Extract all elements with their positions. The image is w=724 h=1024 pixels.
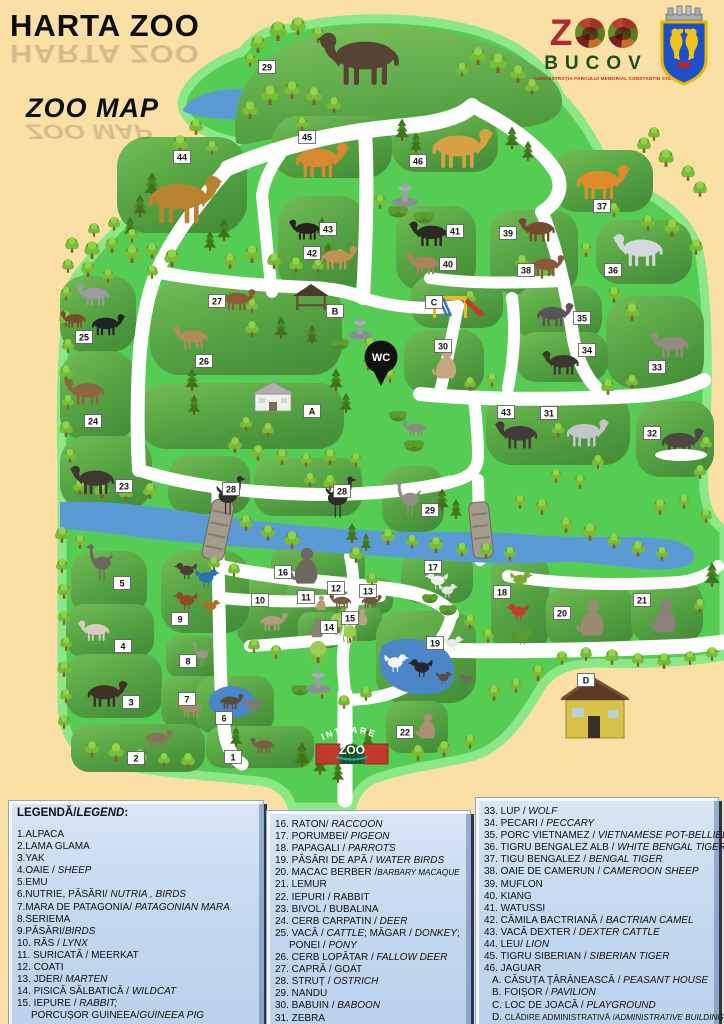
enclosure-marker-12: 12 [328,582,345,595]
marker-label: 26 [199,356,209,366]
legend-text-segment: 39. MUFLON [484,879,543,890]
enclosure-marker-4: 4 [115,640,132,653]
zoo-map-poster: INTRARE ZOO WC 294445463741403938364342C… [0,0,724,1024]
legend-text-segment: 19. PĂSĂRI DE APĂ / [275,855,376,866]
enclosure-marker-23: 23 [116,480,133,493]
legend-text-segment: 36. TIGRU BENGALEZ ALB / [484,842,617,853]
legend-text-segment: 25. VACĂ / [275,928,327,939]
legend-text-segment: 18. PAPAGALI / [275,843,348,854]
legend-text-segment: GUINEEA PIG [139,1010,204,1021]
enclosure-marker-C: C [426,296,443,309]
enclosure-marker-2: 2 [128,752,145,765]
shield-base [678,62,690,68]
legend-text-segment: 11. SURICATĂ / MEERKAT [17,950,139,961]
enclosure-marker-43: 43 [320,223,337,236]
legend-item: 9.PĂSĂRI/BIRDS [17,926,255,938]
legend-item: 22. IEPURI / RABBIT [275,892,462,904]
legend-panel-3: 33. LUP / WOLF34. PECARI / PECCARY35. PO… [475,797,719,1024]
legend-text-segment: 22. IEPURI / RABBIT [275,892,369,903]
legend-text-segment: 28. STRUȚ / [275,976,333,987]
marker-label: 20 [557,608,567,618]
marker-label: 44 [177,152,187,162]
legend-item: A. CĂSUȚA ȚĂRĂNEASCĂ / PEASANT HOUSE [484,975,710,987]
legend-text-segment: 20. MACAC BERBER / [275,867,377,878]
legend-item: 45. TIGRU SIBERIAN / SIBERIAN TIGER [484,951,710,963]
marker-label: 14 [324,622,334,632]
marker-label: 34 [582,345,592,355]
legend-item: 29. NANDU [275,988,462,1000]
legend-text-segment: BARBARY MACAQUE [377,868,459,877]
legend-text-segment: 14. PISICĂ SĂLBATICĂ / [17,986,132,997]
legend-text-segment: DONKEY [415,928,457,939]
marker-label: 10 [255,595,265,605]
legend-text-segment: CAMEROON SHEEP [603,866,699,877]
legend-text-segment: SIBERIAN TIGER [589,951,669,962]
enclosure-marker-25: 25 [76,331,93,344]
logo-letter-z: Z [550,16,573,50]
legend-text-segment: : [124,807,128,819]
enclosure-marker-35: 35 [574,312,591,325]
legend-text-segment: D. [492,1012,505,1023]
legend-item: 25. VACĂ / CATTLE; MĂGAR / DONKEY; [275,928,462,940]
marker-label: 43 [501,407,511,417]
legend-text-segment: 46. JAGUAR [484,963,541,974]
legend-text-segment: VIETNAMESE POT-BELLIED [598,830,724,841]
enclosure-marker-37: 37 [594,200,611,213]
shield [662,22,706,84]
legend-item: 26. CERB LOPĂTAR / FALLOW DEER [275,952,462,964]
legend-text-segment: 17. PORUMBEI/ [275,831,351,842]
legend-text-segment: 44. LEU/ [484,939,526,950]
enclosure-marker-27: 27 [209,295,226,308]
legend-panel-1: LEGENDĂ/LEGEND: 1.ALPACA2.LAMA GLAMA3.YA… [8,800,264,1024]
legend-item: 10. RÂS / LYNX [17,938,255,950]
enclosure-marker-6: 6 [216,712,233,725]
enclosure [66,604,154,658]
legend-text-segment: WHITE BENGAL TIGER [617,842,724,853]
legend-item: 40. KIANG [484,891,710,903]
legend-item: 36. TIGRU BENGALEZ ALB / WHITE BENGAL TI… [484,842,710,854]
legend-text-segment: 8.SERIEMA [17,914,70,925]
marker-label: 31 [544,408,554,418]
legend-text-segment: LYNX [63,938,88,949]
legend-text-segment: 27. CAPRĂ / GOAT [275,964,362,975]
marker-label: 6 [221,713,226,723]
legend-text-segment: 23. BIVOL / BUBALINA [275,904,379,915]
legend-text-segment: 37. TIGU BENGALEZ / [484,854,589,865]
legend-item: 34. PECARI / PECCARY [484,818,710,830]
legend-text-segment: 26. CERB LOPĂTAR / [275,952,377,963]
enclosure-marker-10: 10 [252,594,269,607]
legend-text-segment: NUTRIA , BIRDS [110,889,186,900]
marker-label: 12 [331,583,341,593]
marker-label: C [431,297,438,307]
legend-item: 4.OAIE / SHEEP [17,865,255,877]
legend-item: 13. JDER/ MARTEN [17,974,255,986]
legend-item: 35. PORC VIETNAMEZ / VIETNAMESE POT-BELL… [484,830,710,842]
enclosure-marker-11: 11 [298,591,315,604]
enclosure-marker-1: 1 [225,751,242,764]
legend-item: 19. PĂSĂRI DE APĂ / WATER BIRDS [275,855,462,867]
legend-text-segment: DEXTER CATTLE [579,927,660,938]
legend-text-segment: 45. TIGRU SIBERIAN / [484,951,589,962]
enclosure-marker-17: 17 [425,561,442,574]
legend-text-segment: 3.YAK [17,853,45,864]
marker-label: 22 [400,727,410,737]
enclosure-marker-3: 3 [123,696,140,709]
enclosure-marker-42: 42 [304,247,321,260]
legend-text-segment: 34. PECARI / [484,818,546,829]
legend-text-segment: 12. COATI [17,962,64,973]
walk-path [250,638,346,646]
legend-text-segment: BIRDS [65,926,96,937]
legend-text-segment: 6.NUTRIE, PĂSĂRI/ [17,889,110,900]
walk-path [508,298,514,388]
zoo-bucov-logo: Z BUCOV ADMINISTRAȚIA PARCULUI MEMORIAL … [534,14,654,81]
walk-path [343,638,346,694]
marker-label: 35 [577,313,587,323]
legend-item: 14. PISICĂ SĂLBATICĂ / WILDCAT [17,986,255,998]
legend-text-segment: PEASANT HOUSE [623,975,708,986]
logo-name: BUCOV [538,53,654,75]
enclosure-marker-18: 18 [494,586,511,599]
legend-item: C. LOC DE JOACĂ / PLAYGROUND [484,1000,710,1012]
marker-label: 39 [503,228,513,238]
walk-path [363,132,366,298]
enclosure-marker-45: 45 [299,131,316,144]
legend-text-segment: PAVILION [551,987,596,998]
legend-item: 15. IEPURE / RABBIT; [17,998,255,1010]
enclosure-marker-22: 22 [397,726,414,739]
legend-item: 24. CERB CARPATIN / DEER [275,916,462,928]
legend-text-segment: 4.OAIE / [17,865,58,876]
legend-text-segment: SHEEP [58,865,92,876]
legend-item: 1.ALPACA [17,829,255,841]
legend-item: 41. WATUSSI [484,903,710,915]
legend-item: 18. PAPAGALI / PARROTS [275,843,462,855]
marker-label: 28 [337,486,347,496]
legend-item: 33. LUP / WOLF [484,806,710,818]
legend-item: PORCUȘOR GUINEEA/GUINEEA PIG [17,1010,255,1022]
legend-item: 42. CĂMILA BACTRIANĂ / BACTRIAN CAMEL [484,915,710,927]
marker-label: 23 [119,481,129,491]
enclosure-marker-15: 15 [342,612,359,625]
enclosure-marker-A: A [304,405,321,418]
marker-label: 8 [185,656,190,666]
legend-item: D. CLĂDIRE ADMINISTRATIVĂ /ADMINISTRATIV… [484,1012,710,1024]
legend-text-segment: LEGEND [76,807,124,819]
legend-text-segment: CLĂDIRE ADMINISTRATIVĂ / [505,1013,615,1022]
legend-text-segment: 9.PĂSĂRI/ [17,926,65,937]
legend-item: 2.LAMA GLAMA [17,841,255,853]
legend-text-segment: 21. LEMUR [275,879,327,890]
legend-item: 39. MUFLON [484,879,710,891]
marker-label: 29 [425,505,435,515]
enclosure-marker-33: 33 [649,361,666,374]
legend-text-segment: 41. WATUSSI [484,903,545,914]
legend-text-segment: A. CĂSUȚA ȚĂRĂNEASCĂ / [492,975,623,986]
marker-label: 24 [88,416,98,426]
enclosure-marker-36: 36 [605,264,622,277]
legend-text-segment: BENGAL TIGER [589,854,663,865]
legend-text-segment: 7.MARA DE PATAGONIA/ [17,902,135,913]
enclosure-marker-39: 39 [500,227,517,240]
legend-item: 7.MARA DE PATAGONIA/ PATAGONIAN MARA [17,902,255,914]
legend-text-segment: CATTLE [327,928,365,939]
marker-label: 41 [450,226,460,236]
legend-text-segment: ADMINISTRATIVE BUILDING [615,1013,724,1022]
marker-label: 11 [301,592,311,602]
legend-text-segment: 29. NANDU [275,988,327,999]
enclosure-marker-30: 30 [435,340,452,353]
legend-text-segment: LION [526,939,549,950]
marker-label: D [583,675,590,685]
legend-text-segment: 31. ZEBRA [275,1013,325,1024]
legend-text-segment: ; [457,928,460,939]
marker-label: 2 [133,753,138,763]
legend-text-segment: BABOON [337,1000,380,1011]
marker-label: 25 [79,332,89,342]
marker-label: 4 [120,641,125,651]
marker-label: 30 [438,341,448,351]
legend-text-segment: PONY [328,940,356,951]
city-coat-of-arms [658,4,710,88]
legend-item: 43. VACĂ DEXTER / DEXTER CATTLE [484,927,710,939]
marker-label: 7 [184,694,189,704]
legend-text-segment: 35. PORC VIETNAMEZ / [484,830,598,841]
legend-text-segment: 24. CERB CARPATIN / [275,916,380,927]
marker-label: 19 [430,638,440,648]
marker-label: 43 [323,224,333,234]
legend-item: 17. PORUMBEI/ PIGEON [275,831,462,843]
legend-text-segment: 40. KIANG [484,891,532,902]
legend-text-segment: 33. LUP / [484,806,528,817]
legend-item: PONEI / PONY [275,940,462,952]
marker-label: 16 [278,567,288,577]
legend-text-segment: 16. RATON/ [275,819,331,830]
enclosure-marker-40: 40 [440,258,457,271]
enclosure-marker-9: 9 [172,613,189,626]
enclosure [278,196,366,292]
marker-label: 45 [302,132,312,142]
legend-text-segment: 15. IEPURE / [17,998,79,1009]
enclosure-marker-D: D [578,674,595,687]
legend-item: 11. SURICATĂ / MEERKAT [17,950,255,962]
enclosure-marker-21: 21 [634,594,651,607]
marker-label: B [332,306,339,316]
enclosure-marker-34: 34 [579,344,596,357]
marker-label: 18 [497,587,507,597]
marker-label: 3 [128,697,133,707]
marker-label: 37 [597,201,607,211]
legend-text-segment: 42. CĂMILA BACTRIANĂ / [484,915,606,926]
marker-label: 29 [262,62,272,72]
legend-item: 44. LEU/ LION [484,939,710,951]
legend-text-segment: RABBIT; [79,998,117,1009]
legend-text-segment: FALLOW DEER [377,952,448,963]
marker-label: 46 [413,156,423,166]
wc-label: WC [372,352,390,364]
marker-label: 5 [119,578,124,588]
marker-label: 17 [428,562,438,572]
legend-text-segment: 10. RÂS / [17,938,63,949]
enclosure-marker-16: 16 [275,566,292,579]
marker-label: 27 [212,296,222,306]
enclosure-marker-19: 19 [427,637,444,650]
enclosure-marker-13: 13 [360,585,377,598]
legend-text-segment: PECCARY [546,818,594,829]
enclosure-marker-41: 41 [447,225,464,238]
legend-item: 20. MACAC BERBER /BARBARY MACAQUE [275,867,462,879]
walk-path [430,278,560,283]
legend-text-segment: PIGEON [351,831,390,842]
legend-item: 37. TIGU BENGALEZ / BENGAL TIGER [484,854,710,866]
legend-item: 23. BIVOL / BUBALINA [275,904,462,916]
entrance-label-zoo: ZOO [339,743,365,757]
marker-label: A [309,406,316,416]
walk-path [430,642,724,651]
marker-label: 42 [307,248,317,258]
legend-text-segment: LEGENDĂ/ [17,807,76,819]
legend-item: 8.SERIEMA [17,914,255,926]
legend-item: 5.EMU [17,877,255,889]
legend-text-segment: 30. BABUIN / [275,1000,337,1011]
enclosure-marker-24: 24 [85,415,102,428]
marker-label: 9 [177,614,182,624]
marker-label: 21 [637,595,647,605]
legend-item: 38. OAIE DE CAMERUN / CAMEROON SHEEP [484,866,710,878]
enclosure-marker-28: 28 [223,483,240,496]
marker-label: 32 [647,428,657,438]
legend-text-segment: ; MĂGAR / [364,928,415,939]
enclosure-marker-29: 29 [259,61,276,74]
enclosure-marker-26: 26 [196,355,213,368]
legend-item: 6.NUTRIE, PĂSĂRI/ NUTRIA , BIRDS [17,889,255,901]
legend-text-segment: 13. JDER/ [17,974,65,985]
marker-label: 15 [345,613,355,623]
legend-item: 28. STRUȚ / OSTRICH [275,976,462,988]
legend-text-segment: C. LOC DE JOACĂ / [492,1000,586,1011]
legend-text-segment: PLAYGROUND [586,1000,655,1011]
legend-text-segment: PATAGONIAN MARA [135,902,230,913]
legend-item: 46. JAGUAR [484,963,710,975]
legend-item: 21. LEMUR [275,879,462,891]
mural-crown-icon [666,6,702,20]
enclosure-marker-14: 14 [321,621,338,634]
enclosure-marker-44: 44 [174,151,191,164]
marker-label: 13 [363,586,373,596]
legend-text-segment: 43. VACĂ DEXTER / [484,927,579,938]
legend-item: 31. ZEBRA [275,1013,462,1024]
enclosure-marker-32: 32 [644,427,661,440]
legend-text-segment: MARTEN [65,974,107,985]
enclosure-marker-28: 28 [334,485,351,498]
legend-text-segment: 5.EMU [17,877,48,888]
legend-text-segment: 2.LAMA GLAMA [17,841,90,852]
logo-o-badge-deer-icon [575,18,605,48]
legend-item: B. FOIȘOR / PAVILION [484,987,710,999]
logo-tagline: ADMINISTRAȚIA PARCULUI MEMORIAL CONSTANT… [534,76,654,81]
enclosure-marker-20: 20 [554,607,571,620]
logo-o-badge-bird-icon [608,18,638,48]
entrance-gate: INTRARE ZOO [316,725,388,764]
legend-text-segment: WATER BIRDS [376,855,445,866]
enclosure-marker-43: 43 [498,406,515,419]
enclosure-marker-46: 46 [410,155,427,168]
legend-item: 27. CAPRĂ / GOAT [275,964,462,976]
legend-item: 3.YAK [17,853,255,865]
marker-label: 1 [230,752,235,762]
legend-text-segment: PONEI / [289,940,328,951]
legend-text-segment: B. FOIȘOR / [492,987,551,998]
snow-patch [655,449,707,461]
marker-label: 33 [652,362,662,372]
legend-item: 30. BABUIN / BABOON [275,1000,462,1012]
legend-text-segment: PORCUȘOR GUINEEA/ [31,1010,139,1021]
enclosure-marker-5: 5 [114,577,131,590]
enclosure-marker-31: 31 [541,407,558,420]
legend-text-segment: WILDCAT [132,986,176,997]
legend-text-segment: RACCOON [331,819,382,830]
legend-text-segment: 38. OAIE DE CAMERUN / [484,866,603,877]
legend-text-segment: DEER [380,916,408,927]
legend-title: LEGENDĂ/LEGEND: [17,807,255,819]
legend-panel-2: 16. RATON/ RACCOON17. PORUMBEI/ PIGEON18… [266,810,471,1024]
enclosure-marker-8: 8 [180,655,197,668]
marker-label: 40 [443,259,453,269]
legend-text-segment: OSTRICH [333,976,378,987]
enclosure-marker-B: B [327,305,344,318]
enclosure-marker-38: 38 [518,264,535,277]
marker-label: 38 [521,265,531,275]
legend-text-segment: 1.ALPACA [17,829,64,840]
enclosure-marker-7: 7 [179,693,196,706]
legend-item: 12. COATI [17,962,255,974]
legend-item: 16. RATON/ RACCOON [275,819,462,831]
legend-text-segment: PARROTS [348,843,396,854]
marker-label: 28 [226,484,236,494]
legend-text-segment: WOLF [528,806,557,817]
marker-label: 36 [608,265,618,275]
legend-text-segment: BACTRIAN CAMEL [606,915,694,926]
enclosure [66,654,162,718]
enclosure-marker-29: 29 [422,504,439,517]
